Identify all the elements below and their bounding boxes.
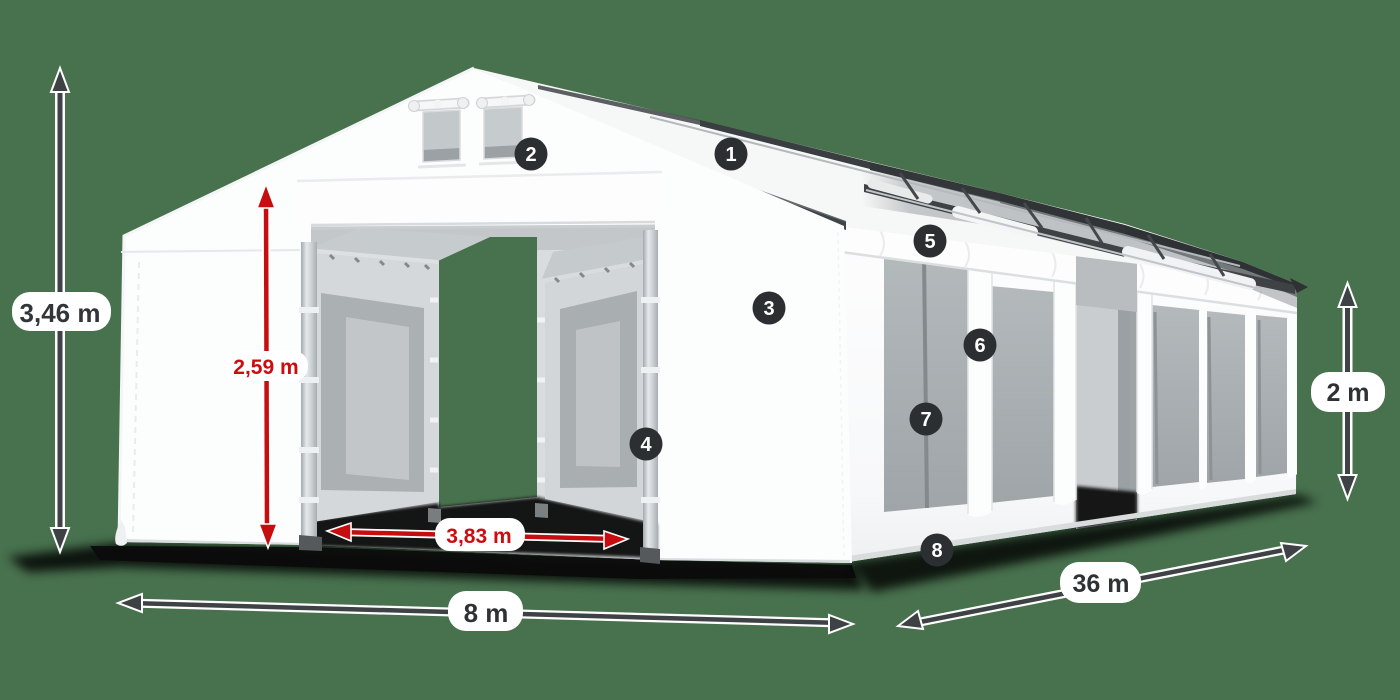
svg-text:5: 5 <box>924 231 935 253</box>
svg-text:4: 4 <box>640 434 652 456</box>
svg-text:6: 6 <box>974 335 985 357</box>
svg-text:3,83 m: 3,83 m <box>446 525 511 548</box>
svg-text:36 m: 36 m <box>1073 570 1130 598</box>
svg-text:2: 2 <box>525 144 536 166</box>
svg-text:2 m: 2 m <box>1326 379 1369 407</box>
svg-text:7: 7 <box>920 409 931 431</box>
svg-text:2,59 m: 2,59 m <box>233 356 298 379</box>
svg-text:8 m: 8 m <box>464 598 509 628</box>
svg-text:8: 8 <box>931 540 942 562</box>
svg-text:3,46 m: 3,46 m <box>20 298 101 328</box>
svg-text:3: 3 <box>763 298 774 320</box>
svg-text:1: 1 <box>725 144 736 166</box>
